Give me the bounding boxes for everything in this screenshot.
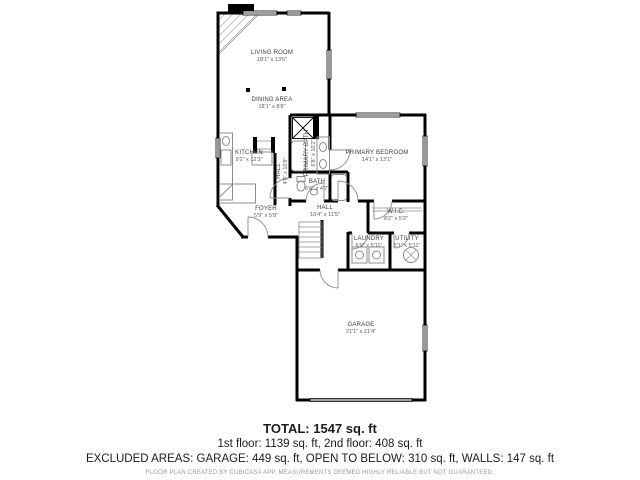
room-name: UTILITY <box>394 235 421 243</box>
room-name: PRIMARY BATH <box>303 130 311 177</box>
room-name: W.I.C. <box>384 208 408 216</box>
room-label-laundry: LAUNDRY 6'0" x 5'11" <box>354 235 384 251</box>
room-label-garage: GARAGE 21'1" x 21'4" <box>346 321 376 337</box>
total-area-text: TOTAL: 1547 sq. ft <box>0 421 640 436</box>
column <box>246 88 250 92</box>
room-dims: 14'1" x 13'1" <box>346 157 409 164</box>
kitchen-counter <box>220 133 273 203</box>
room-name: FOYER <box>254 205 278 213</box>
room-label-hall-small: HALL 4'0" x 10'9" <box>275 157 291 184</box>
room-dims: 8'2" x 5'2" <box>384 216 408 223</box>
room-name: DINING AREA <box>252 96 293 104</box>
room-name: PRIMARY BEDROOM <box>346 149 409 157</box>
toilet <box>297 177 305 192</box>
room-label-kitchen: KITCHEN 9'2" x 12'3" <box>235 149 263 165</box>
primary-vanity <box>317 137 330 174</box>
room-dims: 6'8" x 10'2" <box>311 130 318 177</box>
column <box>282 87 286 91</box>
stairs <box>299 222 322 258</box>
room-name: LIVING ROOM <box>251 49 293 57</box>
area-summary: TOTAL: 1547 sq. ft 1st floor: 1139 sq. f… <box>0 421 640 476</box>
room-dims: 6'6" x 4'7" <box>305 186 329 193</box>
room-name: BATH <box>305 178 329 186</box>
room-name: HALL <box>275 157 283 184</box>
excluded-areas-text: EXCLUDED AREAS: GARAGE: 449 sq. ft, OPEN… <box>0 453 640 466</box>
room-dims: 21'1" x 21'4" <box>346 329 376 336</box>
room-label-utility: UTILITY 5'1" x 5'11" <box>394 235 421 251</box>
room-label-dining-area: DINING AREA 18'1" x 8'8" <box>252 96 293 112</box>
room-dims: 5'1" x 5'11" <box>394 243 421 250</box>
room-dims: 6'0" x 5'11" <box>354 243 384 250</box>
bathtub <box>332 175 347 201</box>
room-label-foyer: FOYER 5'9" x 5'9" <box>254 205 278 221</box>
room-name: GARAGE <box>346 321 376 329</box>
room-dims: 10'4" x 11'5" <box>310 212 340 219</box>
room-label-primary-bath: PRIMARY BATH 6'8" x 10'2" <box>303 130 319 177</box>
room-dims: 4'0" x 10'9" <box>283 157 290 184</box>
room-name: LAUNDRY <box>354 235 384 243</box>
room-dims: 9'2" x 12'3" <box>235 157 263 164</box>
room-label-living-room: LIVING ROOM 18'1" x 13'6" <box>251 49 293 65</box>
room-dims: 5'9" x 5'9" <box>254 213 278 220</box>
room-label-bath: BATH 6'6" x 4'7" <box>305 178 329 194</box>
room-label-wic: W.I.C. 8'2" x 5'2" <box>384 208 408 224</box>
room-name: HALL <box>310 204 340 212</box>
room-label-hall: HALL 10'4" x 11'5" <box>310 204 340 220</box>
floor-plan-page: LIVING ROOM 18'1" x 13'6" DINING AREA 18… <box>0 0 640 480</box>
room-label-primary-bedroom: PRIMARY BEDROOM 14'1" x 13'1" <box>346 149 409 165</box>
room-name: KITCHEN <box>235 149 263 157</box>
garage-entry-door <box>320 270 338 288</box>
room-dims: 18'1" x 8'8" <box>252 104 293 111</box>
floorplan-drawing <box>0 0 640 480</box>
floor-areas-text: 1st floor: 1139 sq. ft, 2nd floor: 408 s… <box>0 438 640 451</box>
disclaimer-text: FLOOR PLAN CREATED BY CUBICASA APP. MEAS… <box>0 470 640 476</box>
room-dims: 18'1" x 13'6" <box>251 57 293 64</box>
cased-opening-jamb <box>271 137 275 153</box>
